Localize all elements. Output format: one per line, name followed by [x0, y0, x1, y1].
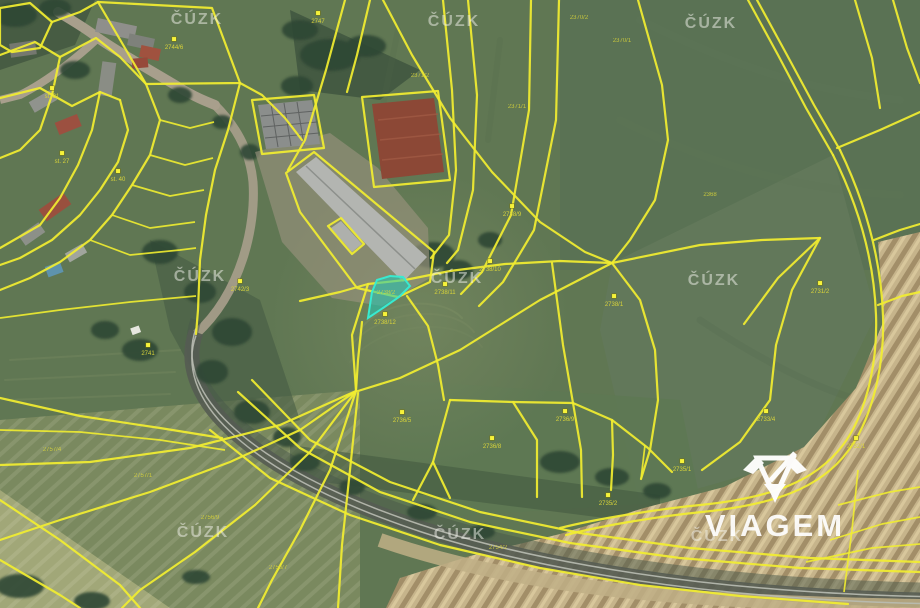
parcel-number-label: 2738/11 [434, 290, 456, 296]
parcel-number-label: 2738/2 [377, 290, 396, 296]
parcel-number-label: 2756/9 [201, 515, 220, 521]
parcel-number-label: 2738/9 [503, 212, 522, 218]
parcel-number-label: 2370/1 [613, 38, 632, 44]
cadastral-map[interactable]: 27472744/6st. 31st. 27st. 402742/3274127… [0, 0, 920, 608]
parcel-number-label: 2735/1 [673, 467, 692, 473]
parcel-number-label: 2744/6 [165, 45, 184, 51]
parcel-number-label: 2735/2 [599, 501, 618, 507]
parcel-number-label: 2736/5 [393, 418, 412, 424]
parcel-number-label: 2757/1 [134, 473, 153, 479]
cuzk-watermark: ČÚZK [434, 524, 486, 543]
cuzk-watermark: ČÚZK [685, 13, 737, 32]
parcel-number-label: 2741 [141, 351, 155, 357]
parcel-number-label: 2738/1 [605, 302, 624, 308]
cadastral-map-viewport[interactable]: 27472744/6st. 31st. 27st. 402742/3274127… [0, 0, 920, 608]
parcel-number-label: 2738/12 [374, 320, 396, 326]
cuzk-watermark: ČÚZK [431, 268, 483, 287]
parcel-number-label: 2756/7 [269, 565, 288, 571]
parcel-number-label: 2732/1 [847, 444, 866, 450]
parcel-number-label: st. 31 [45, 94, 60, 100]
parcel-number-label: 2742/3 [231, 287, 250, 293]
parcel-number-label: 2754/2 [489, 545, 508, 551]
cuzk-watermark: ČÚZK [428, 11, 480, 30]
parcel-number-label: 2371/2 [411, 73, 430, 79]
parcel-number-label: 2736/8 [483, 444, 502, 450]
parcel-number-label: 2733/4 [757, 417, 776, 423]
viagem-logo-text: VIAGEM [705, 508, 845, 543]
parcel-number-label: 2736/9 [556, 417, 575, 423]
parcel-number-label: 2731/2 [811, 289, 830, 295]
cuzk-watermark: ČÚZK [171, 9, 223, 28]
parcel-number-label: 2370/2 [570, 15, 589, 21]
cuzk-watermark: ČÚZK [688, 270, 740, 289]
parcel-number-label: st. 27 [55, 159, 70, 165]
parcel-number-label: 2757/4 [43, 447, 62, 453]
cuzk-watermark: ČÚZK [174, 266, 226, 285]
parcel-number-label: 2747 [311, 19, 325, 25]
cuzk-watermark: ČÚZK [177, 522, 229, 541]
parcel-number-label: 2368 [703, 192, 717, 198]
parcel-number-label: 2371/1 [508, 104, 527, 110]
parcel-number-label: st. 40 [111, 177, 126, 183]
